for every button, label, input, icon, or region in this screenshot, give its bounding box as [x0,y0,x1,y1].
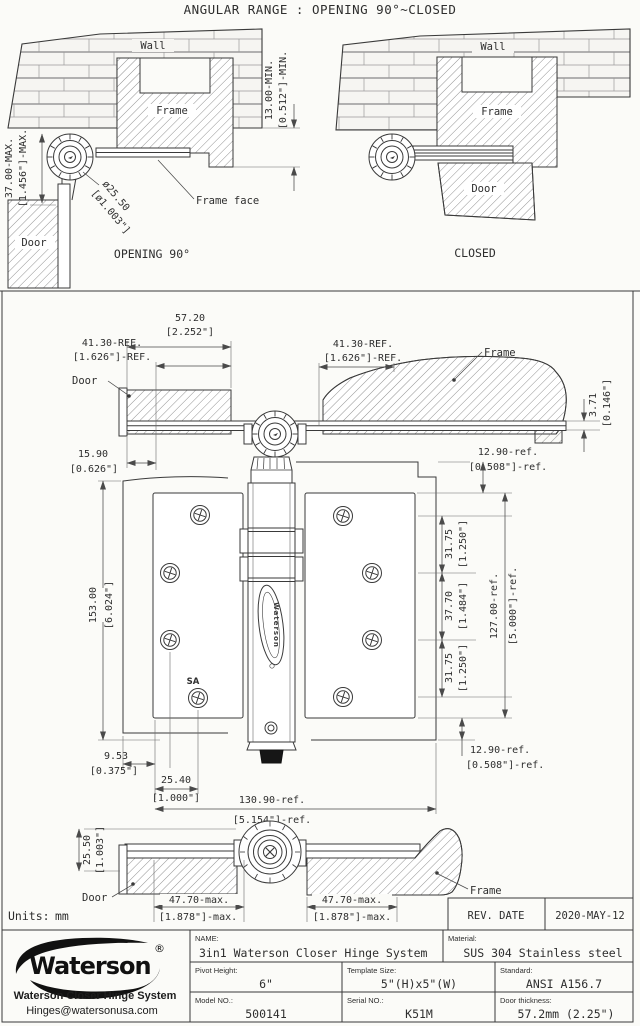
dim-153-mm: 153.00 [88,587,99,623]
logo-wordmark: Waterson [29,952,150,980]
view-front: SA Waterson 153.00 [6.024" [88,447,547,826]
company-email: Hinges@watersonusa.com [26,1005,158,1017]
dim-127-mm: 127.00-ref. [489,573,500,639]
rev-date-label: REV. DATE [468,910,525,922]
dim-13-mm: 13.00-MIN. [264,60,275,120]
model-no-value: 500141 [245,1007,287,1021]
dim-1309-mm: 130.90-ref. [239,795,305,806]
set-screw [265,722,277,734]
wall-label: Wall [140,40,165,52]
hinge-dial [369,134,415,180]
standard-label: Standard: [500,966,533,975]
frame-label: Frame [484,347,516,359]
dim-41R-mm: 41.30-REF. [333,339,393,350]
hinge-dial [47,134,93,180]
dim-41R-in: [1.626"]-REF. [324,353,402,364]
view-opening-90: Wall Frame Door OPENING 90° 37.00-MAX. [… [4,29,300,288]
dim-129T-in: [0.508"]-ref. [469,462,547,473]
dim-254-mm: 25.40 [161,775,191,786]
hinge-dial [252,411,298,457]
dim-953-mm: 9.53 [104,751,128,762]
material-label: Material: [448,934,477,943]
door-label: Door [72,375,97,387]
dim-129B-in: [0.508"]-ref. [466,760,544,771]
dim-3-mm: 3.71 [588,393,599,417]
name-label: NAME: [195,934,219,943]
dim-37-in: [1.456"]-MAX. [18,129,29,207]
dim-15-in: [0.626"] [70,464,118,475]
frame-label: Frame [470,885,502,897]
dim-37-mm: 37.00-MAX. [4,138,15,198]
wall-label: Wall [480,41,505,53]
dim-41L-in: [1.626"]-REF. [73,352,151,363]
screw-hole [363,564,382,583]
opening-caption: OPENING 90° [114,247,190,261]
serial-no-value: K51M [405,1007,433,1021]
dim-3175a-in: [1.250"] [458,520,469,568]
door-edge [58,184,70,288]
frame-face-label: Frame face [196,195,259,207]
drawing-sheet: ANGULAR RANGE : OPENING 90°~CLOSED Wall … [0,0,640,1026]
rev-date-value: 2020-MAY-12 [555,910,625,922]
dim-3175a-mm: 31.75 [444,529,455,559]
view-bottom-section: 25.50 [1.003"] Door Frame 47.70-max. [1.… [79,821,502,923]
screw-hole [363,631,382,650]
dim-255-mm: 25.50 [82,835,93,865]
units-label: Units: [8,909,50,923]
door-section [127,858,237,894]
closed-caption: CLOSED [454,246,496,260]
screw-hole [161,631,180,650]
frame-leaf [305,493,415,718]
view-closed: Wall Frame Door CLOSED [336,29,630,260]
dim-153-in: [6.024"] [104,581,115,629]
screw-hole [334,507,353,526]
name-value: 3in1 Waterson Closer Hinge System [199,946,428,960]
dim-129B-mm: 12.90-ref. [470,745,530,756]
dim-3175b-mm: 31.75 [444,653,455,683]
dim-477R-in: [1.878"]-max. [313,912,391,923]
door-thickness-value: 57.2mm (2.25") [518,1007,615,1021]
hinge-technical-drawing: ANGULAR RANGE : OPENING 90°~CLOSED Wall … [0,0,640,1026]
dim-127-in: [5.000"]-ref. [508,567,519,645]
dim-15-mm: 15.90 [78,449,108,460]
template-size-label: Template Size: [347,966,396,975]
registered-mark: ® [154,942,165,955]
door-edge [119,845,127,894]
screw-hole [191,506,210,525]
dim-57-mm: 57.20 [175,313,205,324]
material-value: SUS 304 Stainless steel [463,946,622,960]
angular-range-title: ANGULAR RANGE : OPENING 90°~CLOSED [184,2,457,17]
dim-3-in: [0.146"] [602,379,613,427]
dim-3175b-in: [1.250"] [458,644,469,692]
dim-13-in: [0.512"]-MIN. [278,51,289,129]
dim-254-in: [1.000"] [152,793,200,804]
frame-section [307,829,462,895]
screw-hole [161,564,180,583]
units-value: mm [55,909,69,923]
dim-255-in: [1.003"] [95,826,106,874]
dim-953-in: [0.375"] [90,766,138,777]
dim-477R-mm: 47.70-max. [322,895,382,906]
dim-477L-mm: 47.70-max. [169,895,229,906]
dim-41L-mm: 41.30-REF. [82,338,142,349]
dim-477L-in: [1.878"]-max. [159,912,237,923]
barrel-logo-text: Waterson [272,602,280,648]
template-size-value: 5"(H)x5"(W) [381,977,457,991]
standard-value: ANSI A156.7 [526,977,602,991]
frame-label: Frame [156,105,188,117]
serial-no-label: Serial NO.: [347,996,384,1005]
dim-57-in: [2.252"] [166,327,214,338]
adjustment-nut [260,750,283,763]
company-name: Waterson Closer Hinge System [14,990,177,1002]
door-thickness-label: Door thickness: [500,996,552,1005]
door-label: Door [21,237,46,249]
door-label: Door [82,892,107,904]
dim-377-mm: 37.70 [444,591,455,621]
screw-hole [189,689,208,708]
model-no-label: Model NO.: [195,996,233,1005]
dim-129T-mm: 12.90-ref. [478,447,538,458]
dim-377-in: [1.484"] [458,582,469,630]
door-label: Door [471,183,496,195]
screw-hole [334,688,353,707]
sa-mark: SA [187,677,200,687]
frame-label: Frame [481,106,513,118]
pivot-height-label: Pivot Height: [195,966,238,975]
door-edge [119,388,127,436]
pivot-height-value: 6" [259,977,273,991]
